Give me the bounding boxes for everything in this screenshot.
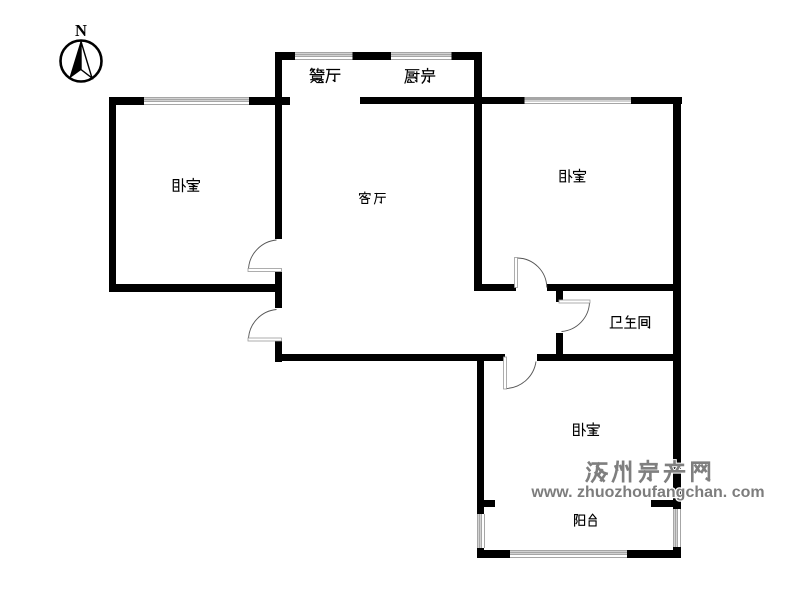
svg-text:www. zhuozhoufangchan. com: www. zhuozhoufangchan. com xyxy=(530,484,764,501)
svg-text:N: N xyxy=(75,21,87,40)
